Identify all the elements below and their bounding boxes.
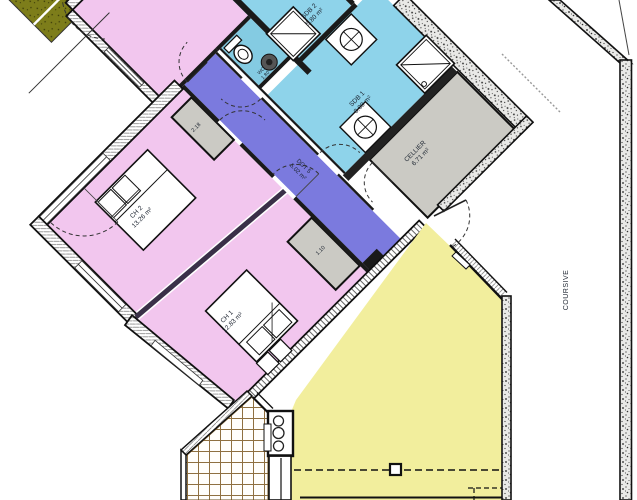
svg-text:COURSIVE: COURSIVE [563, 270, 570, 311]
